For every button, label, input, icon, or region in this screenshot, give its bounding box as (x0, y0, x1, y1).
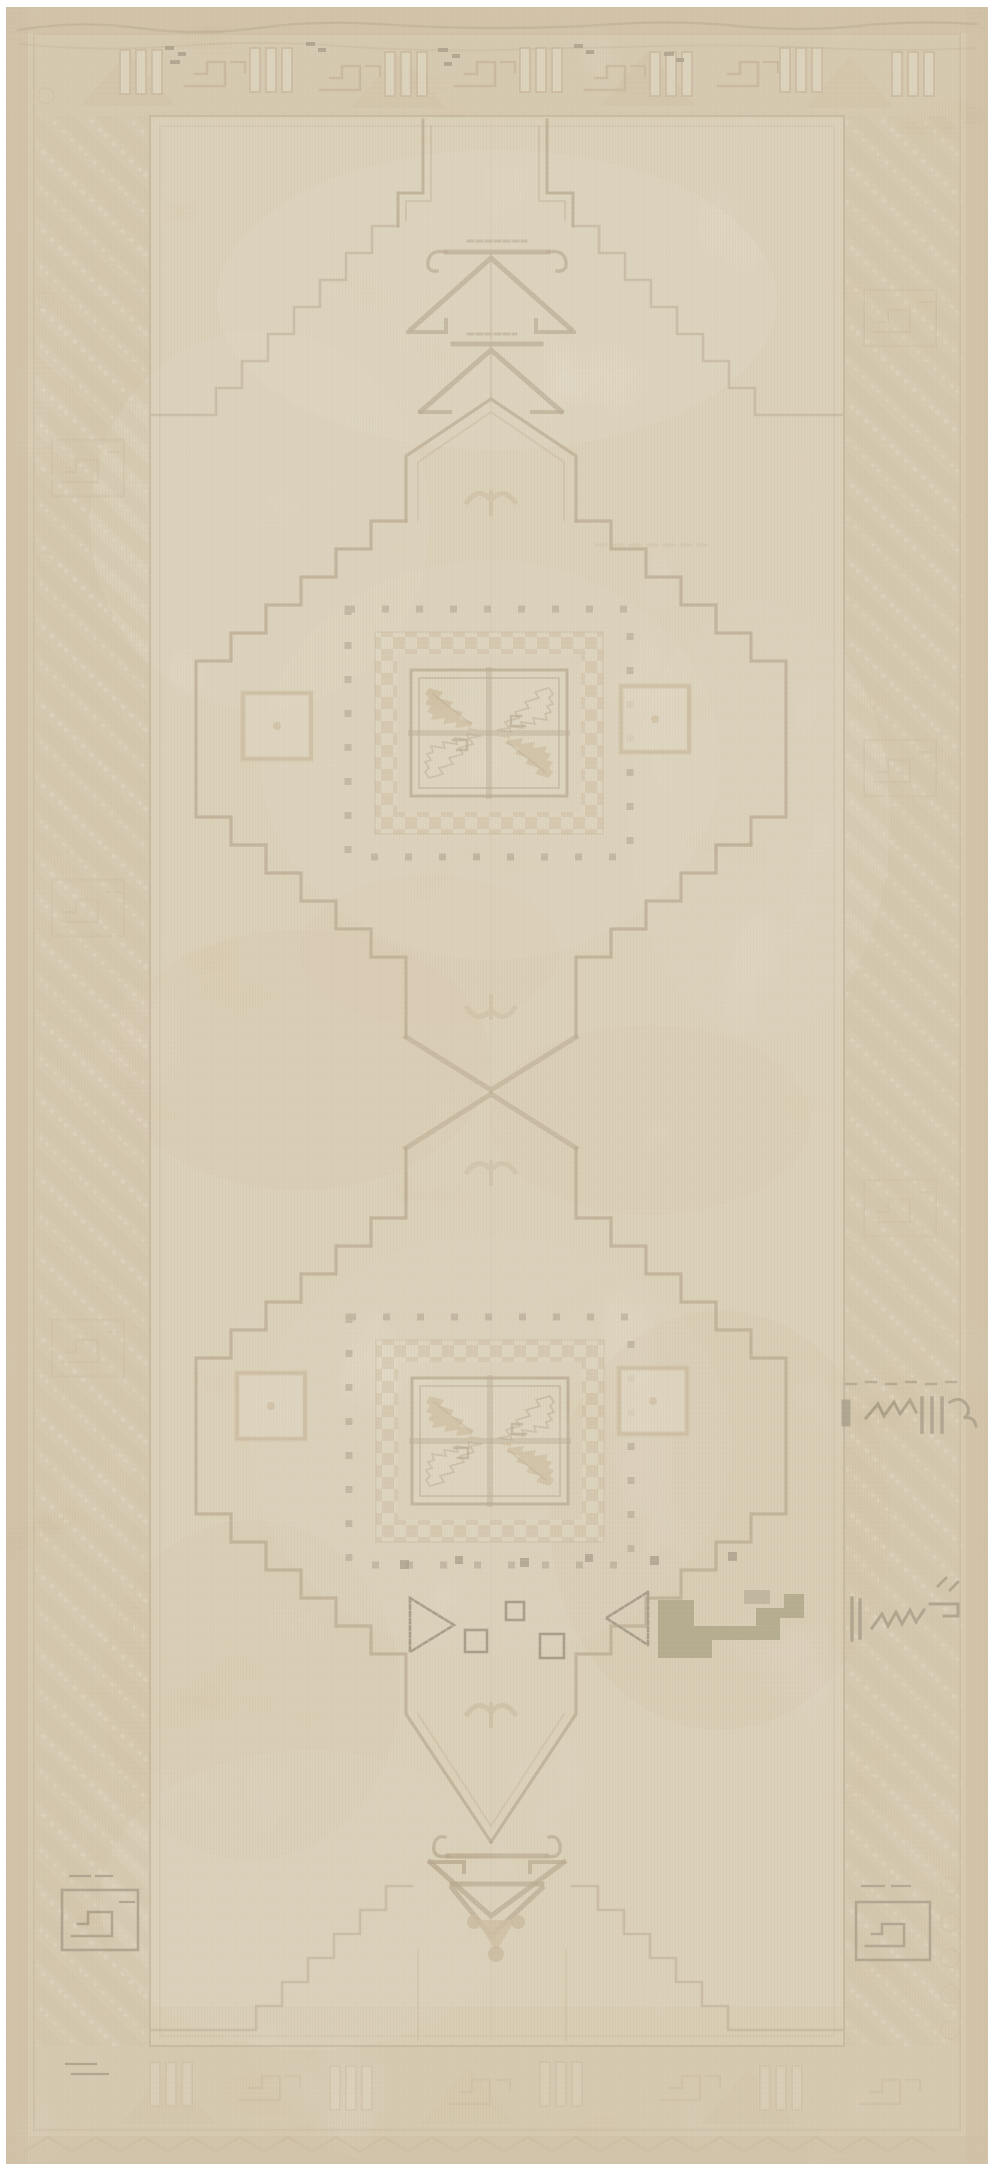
texture-overlays (6, 7, 988, 2164)
rug-artwork (0, 0, 994, 2171)
rug-photo: Vintage hand-woven beige Anatolian (Oush… (0, 0, 994, 2171)
